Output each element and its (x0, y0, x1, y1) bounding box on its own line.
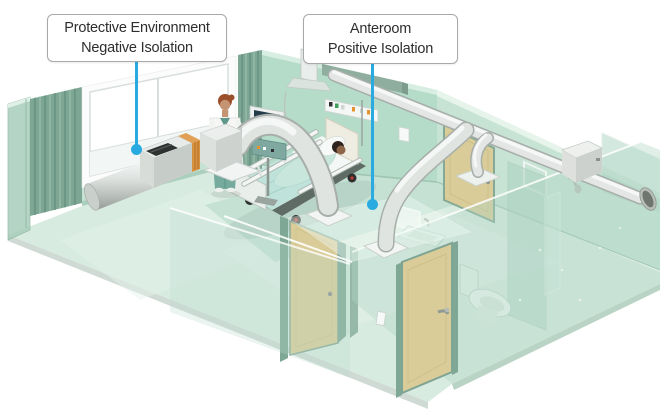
sanitizer-dispenser (376, 312, 386, 326)
callout-line: Negative Isolation (81, 38, 193, 58)
callout-line: Positive Isolation (328, 39, 433, 59)
left-corner-glass-wall (8, 97, 30, 240)
callout-anteroom: Anteroom Positive Isolation (303, 14, 458, 64)
leader-dot-protective (131, 144, 142, 155)
callout-protective-environment: Protective Environment Negative Isolatio… (47, 14, 227, 62)
light-switch (399, 127, 409, 142)
callout-line: Anteroom (350, 19, 411, 39)
privacy-curtain-left (30, 87, 82, 216)
entry-door (402, 243, 452, 393)
leader-dot-anteroom (367, 199, 378, 210)
leader-line-anteroom (371, 61, 374, 204)
callout-line: Protective Environment (64, 18, 210, 38)
nurse-face (220, 100, 230, 110)
leader-line-protective (135, 59, 138, 149)
isolation-room-illustration: Protective Environment Negative Isolatio… (0, 0, 660, 418)
